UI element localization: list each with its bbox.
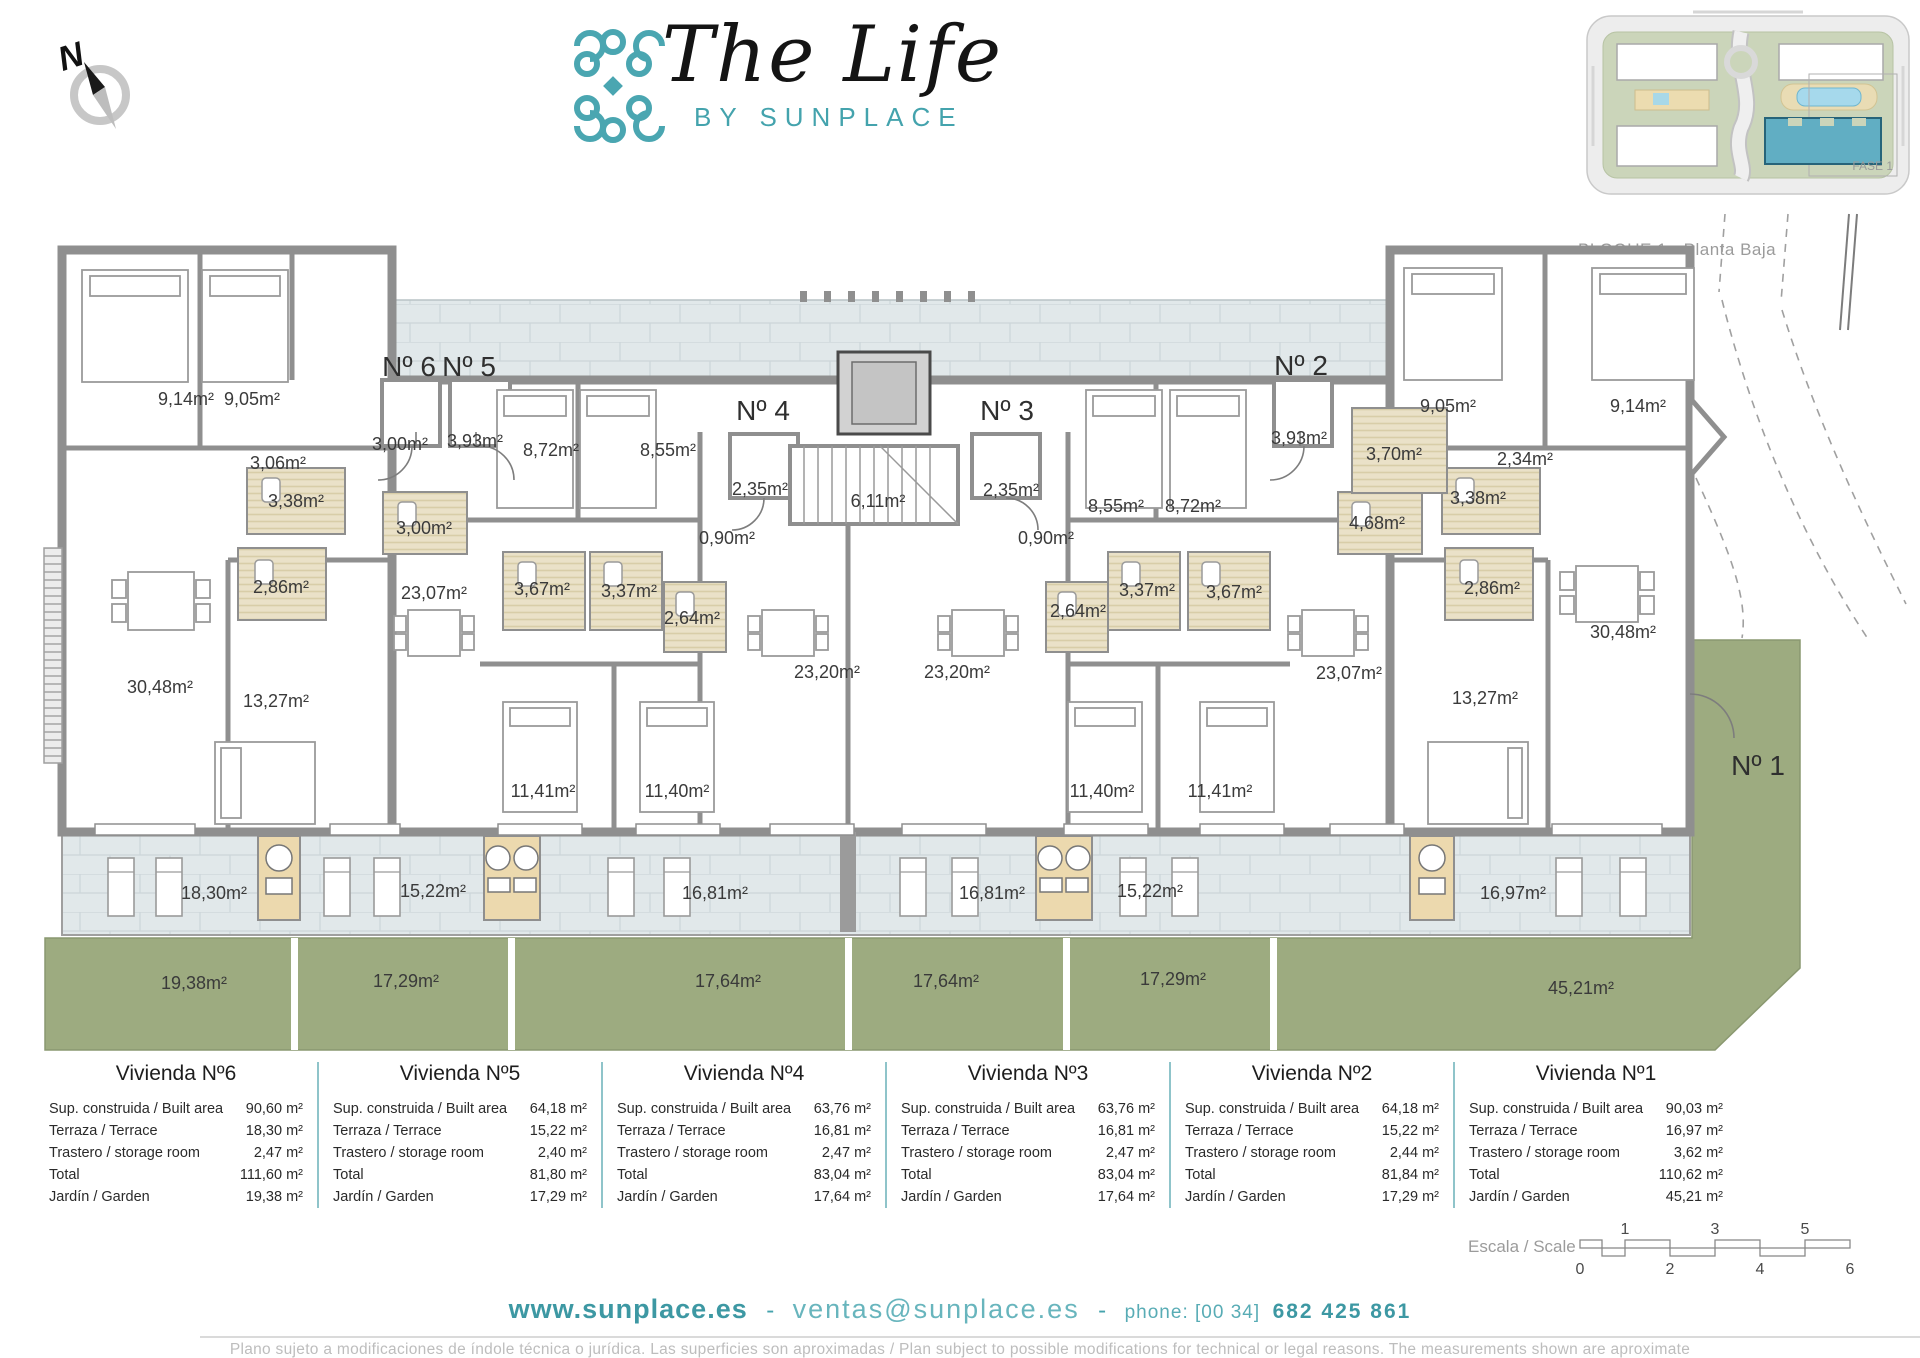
scale-bar: Escala / Scale 1 3 5 0 2 4 6 <box>1468 1221 1855 1278</box>
row-value: 81,80 m² <box>530 1164 587 1186</box>
footer-divider <box>200 1336 1920 1338</box>
row-value: 81,84 m² <box>1382 1164 1439 1186</box>
room-label: 8,72m² <box>1165 496 1221 516</box>
row-label: Trastero / storage room <box>1469 1142 1620 1164</box>
row-value: 2,47 m² <box>254 1142 303 1164</box>
row-label: Terraza / Terrace <box>49 1120 158 1142</box>
row-label: Sup. construida / Built area <box>1185 1098 1359 1120</box>
vivienda-column-4: Vivienda Nº4 Sup. construida / Built are… <box>603 1062 887 1208</box>
column-title: Vivienda Nº5 <box>333 1062 587 1086</box>
row-label: Terraza / Terrace <box>1185 1120 1294 1142</box>
room-label: 23,20m² <box>794 662 860 682</box>
room-label: 4,68m² <box>1349 513 1405 533</box>
room-label: 3,38m² <box>268 491 324 511</box>
terrace-label: 16,81m² <box>682 883 748 903</box>
room-label: 2,64m² <box>664 608 720 628</box>
inset-pool <box>1797 88 1861 106</box>
inset-building-ne <box>1779 44 1883 80</box>
garden-label: 19,38m² <box>161 973 227 993</box>
row-value: 16,81 m² <box>1098 1120 1155 1142</box>
column-title: Vivienda Nº2 <box>1185 1062 1439 1086</box>
room-label: 3,06m² <box>250 453 306 473</box>
scale-tick: 0 <box>1576 1261 1585 1278</box>
row-value: 63,76 m² <box>1098 1098 1155 1120</box>
room-label: 3,37m² <box>1119 580 1175 600</box>
row-label: Jardín / Garden <box>617 1186 718 1208</box>
room-label: 30,48m² <box>127 677 193 697</box>
vivienda-column-5: Vivienda Nº5 Sup. construida / Built are… <box>319 1062 603 1208</box>
vivienda-column-6: Vivienda Nº6 Sup. construida / Built are… <box>35 1062 319 1208</box>
footer-contact: www.sunplace.es - ventas@sunplace.es - p… <box>0 1294 1920 1325</box>
email-link[interactable]: ventas@sunplace.es <box>793 1294 1080 1324</box>
phone-number[interactable]: 682 425 861 <box>1273 1300 1412 1323</box>
unit-label-6: Nº 6 <box>382 351 436 382</box>
inset-building-nw <box>1617 44 1717 80</box>
room-label: 3,93m² <box>1271 428 1327 448</box>
row-value: 3,62 m² <box>1674 1142 1723 1164</box>
row-value: 90,03 m² <box>1666 1098 1723 1120</box>
row-value: 83,04 m² <box>1098 1164 1155 1186</box>
room-label: 3,38m² <box>1450 488 1506 508</box>
terrace-label: 16,97m² <box>1480 883 1546 903</box>
room-label: 23,07m² <box>401 583 467 603</box>
row-label: Sup. construida / Built area <box>49 1098 223 1120</box>
row-value: 17,64 m² <box>1098 1186 1155 1208</box>
scale-tick: 1 <box>1621 1221 1630 1238</box>
scale-tick: 6 <box>1846 1261 1855 1278</box>
row-label: Jardín / Garden <box>333 1186 434 1208</box>
row-label: Trastero / storage room <box>49 1142 200 1164</box>
garden-label: 45,21m² <box>1548 978 1614 998</box>
row-label: Sup. construida / Built area <box>333 1098 507 1120</box>
footer-separator: - <box>766 1297 774 1324</box>
column-title: Vivienda Nº1 <box>1469 1062 1723 1086</box>
row-value: 2,47 m² <box>1106 1142 1155 1164</box>
garden-label: 17,29m² <box>1140 969 1206 989</box>
room-label: 3,93m² <box>447 431 503 451</box>
row-label: Trastero / storage room <box>333 1142 484 1164</box>
row-value: 83,04 m² <box>814 1164 871 1186</box>
website-link[interactable]: www.sunplace.es <box>509 1294 748 1324</box>
row-label: Jardín / Garden <box>1185 1186 1286 1208</box>
row-value: 111,60 m² <box>240 1164 303 1186</box>
vivienda-column-3: Vivienda Nº3 Sup. construida / Built are… <box>887 1062 1171 1208</box>
row-value: 18,30 m² <box>246 1120 303 1142</box>
row-value: 16,97 m² <box>1666 1120 1723 1142</box>
row-label: Total <box>49 1164 80 1186</box>
area-summary-table: Vivienda Nº6 Sup. construida / Built are… <box>35 1062 1737 1208</box>
row-value: 2,44 m² <box>1390 1142 1439 1164</box>
row-label: Trastero / storage room <box>1185 1142 1336 1164</box>
row-label: Jardín / Garden <box>1469 1186 1570 1208</box>
room-label: 0,90m² <box>699 528 755 548</box>
row-label: Trastero / storage room <box>617 1142 768 1164</box>
terrace-label: 15,22m² <box>1117 881 1183 901</box>
room-label: 3,00m² <box>396 518 452 538</box>
room-label: 3,00m² <box>372 434 428 454</box>
room-label: 3,67m² <box>514 579 570 599</box>
scale-tick: 3 <box>1711 1221 1720 1238</box>
room-label: 8,55m² <box>1088 496 1144 516</box>
compass-icon: N <box>53 35 126 129</box>
row-value: 16,81 m² <box>814 1120 871 1142</box>
room-label: 0,90m² <box>1018 528 1074 548</box>
inset-building-sw <box>1617 126 1717 166</box>
row-label: Sup. construida / Built area <box>617 1098 791 1120</box>
phone-label: phone: [00 34] <box>1125 1302 1261 1323</box>
row-value: 17,29 m² <box>530 1186 587 1208</box>
terrace-label: 18,30m² <box>181 883 247 903</box>
row-label: Total <box>333 1164 364 1186</box>
row-value: 64,18 m² <box>1382 1098 1439 1120</box>
road-lines <box>1696 214 1906 642</box>
vivienda-column-2: Vivienda Nº2 Sup. construida / Built are… <box>1171 1062 1455 1208</box>
row-value: 64,18 m² <box>530 1098 587 1120</box>
row-label: Total <box>901 1164 932 1186</box>
terrace-label: 15,22m² <box>400 881 466 901</box>
row-label: Terraza / Terrace <box>901 1120 1010 1142</box>
room-label: 8,72m² <box>523 440 579 460</box>
room-label: 2,86m² <box>253 577 309 597</box>
row-value: 63,76 m² <box>814 1098 871 1120</box>
room-label: 2,35m² <box>732 479 788 499</box>
row-value: 17,29 m² <box>1382 1186 1439 1208</box>
row-value: 15,22 m² <box>530 1120 587 1142</box>
room-label: 2,34m² <box>1497 449 1553 469</box>
room-label: 9,14m² <box>1610 396 1666 416</box>
scale-tick: 2 <box>1666 1261 1675 1278</box>
row-label: Jardín / Garden <box>49 1186 150 1208</box>
room-label: 2,64m² <box>1050 601 1106 621</box>
unit-label-2: Nº 2 <box>1274 350 1328 381</box>
room-label: 23,07m² <box>1316 663 1382 683</box>
room-label: 30,48m² <box>1590 622 1656 642</box>
row-label: Total <box>1185 1164 1216 1186</box>
column-title: Vivienda Nº3 <box>901 1062 1155 1086</box>
unit-label-1: Nº 1 <box>1731 750 1785 781</box>
room-label: 13,27m² <box>1452 688 1518 708</box>
room-label: 6,11m² <box>851 491 906 511</box>
row-value: 2,47 m² <box>822 1142 871 1164</box>
sunplace-logo-icon <box>577 32 662 140</box>
scale-label: Escala / Scale <box>1468 1237 1576 1256</box>
room-label: 9,14m² <box>158 389 214 409</box>
room-label: 23,20m² <box>924 662 990 682</box>
room-label: 3,70m² <box>1366 444 1422 464</box>
row-label: Total <box>1469 1164 1500 1186</box>
row-value: 45,21 m² <box>1666 1186 1723 1208</box>
room-label: 11,40m² <box>645 781 710 801</box>
room-label: 2,35m² <box>983 480 1039 500</box>
unit-label-3: Nº 3 <box>980 395 1034 426</box>
room-label: 3,67m² <box>1206 582 1262 602</box>
row-label: Trastero / storage room <box>901 1142 1052 1164</box>
row-value: 19,38 m² <box>246 1186 303 1208</box>
room-label: 8,55m² <box>640 440 696 460</box>
legal-disclaimer: Plano sujeto a modificaciones de índole … <box>0 1341 1920 1358</box>
row-label: Terraza / Terrace <box>617 1120 726 1142</box>
garden-label: 17,64m² <box>695 971 761 991</box>
room-label: 11,41m² <box>1188 781 1253 801</box>
row-label: Jardín / Garden <box>901 1186 1002 1208</box>
room-label: 3,37m² <box>601 581 657 601</box>
site-plan-inset: FASE 1 <box>1587 12 1909 194</box>
scale-tick: 5 <box>1801 1221 1810 1238</box>
row-label: Sup. construida / Built area <box>1469 1098 1643 1120</box>
room-label: 2,86m² <box>1464 578 1520 598</box>
row-value: 2,40 m² <box>538 1142 587 1164</box>
fase-label: FASE 1 <box>1852 159 1893 173</box>
row-label: Sup. construida / Built area <box>901 1098 1075 1120</box>
row-value: 15,22 m² <box>1382 1120 1439 1142</box>
floor-plan-brochure-page: The Life BY SUNPLACE BLOQUE 1 - Planta B… <box>0 0 1920 1358</box>
unit-label-4: Nº 4 <box>736 395 790 426</box>
garden-label: 17,64m² <box>913 971 979 991</box>
vivienda-column-1: Vivienda Nº1 Sup. construida / Built are… <box>1455 1062 1737 1208</box>
unit-label-5: Nº 5 <box>442 351 496 382</box>
room-label: 9,05m² <box>1420 396 1476 416</box>
scale-tick: 4 <box>1756 1261 1765 1278</box>
garden-label: 17,29m² <box>373 971 439 991</box>
footer-separator: - <box>1098 1297 1106 1324</box>
column-title: Vivienda Nº4 <box>617 1062 871 1086</box>
row-value: 110,62 m² <box>1659 1164 1723 1186</box>
row-label: Terraza / Terrace <box>1469 1120 1578 1142</box>
row-value: 90,60 m² <box>246 1098 303 1120</box>
room-label: 13,27m² <box>243 691 309 711</box>
row-value: 17,64 m² <box>814 1186 871 1208</box>
room-label: 11,40m² <box>1070 781 1135 801</box>
terrace-label: 16,81m² <box>959 883 1025 903</box>
row-label: Total <box>617 1164 648 1186</box>
room-label: 9,05m² <box>224 389 280 409</box>
column-title: Vivienda Nº6 <box>49 1062 303 1086</box>
room-label: 11,41m² <box>511 781 576 801</box>
row-label: Terraza / Terrace <box>333 1120 442 1142</box>
